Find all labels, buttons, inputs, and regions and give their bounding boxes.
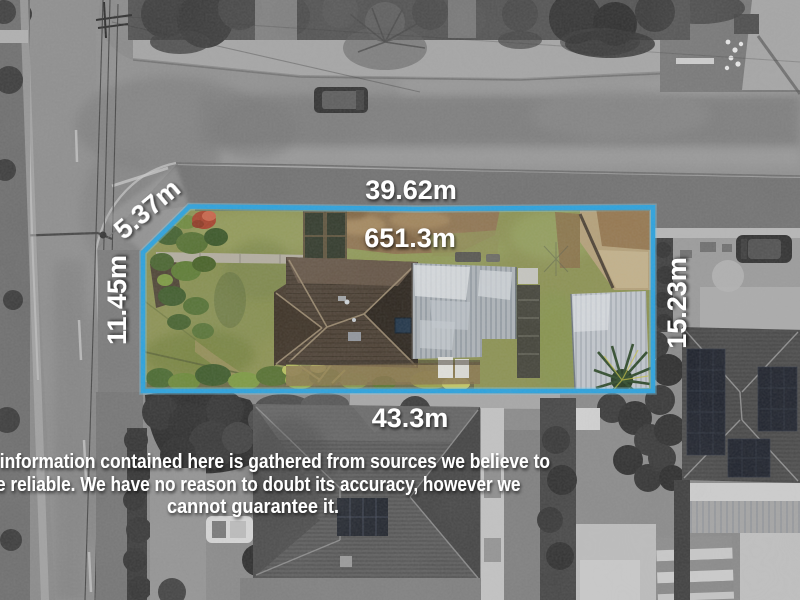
svg-text:be reliable. We have no reason: be reliable. We have no reason to doubt … (0, 473, 521, 496)
svg-text:The information contained here: The information contained here is gather… (0, 450, 550, 473)
svg-text:43.3m: 43.3m (372, 403, 449, 433)
svg-text:651.3m: 651.3m (364, 223, 456, 253)
svg-text:11.45m: 11.45m (102, 255, 132, 345)
svg-text:cannot guarantee it.: cannot guarantee it. (167, 495, 339, 518)
svg-text:39.62m: 39.62m (365, 175, 457, 205)
svg-text:15.23m: 15.23m (662, 257, 692, 349)
